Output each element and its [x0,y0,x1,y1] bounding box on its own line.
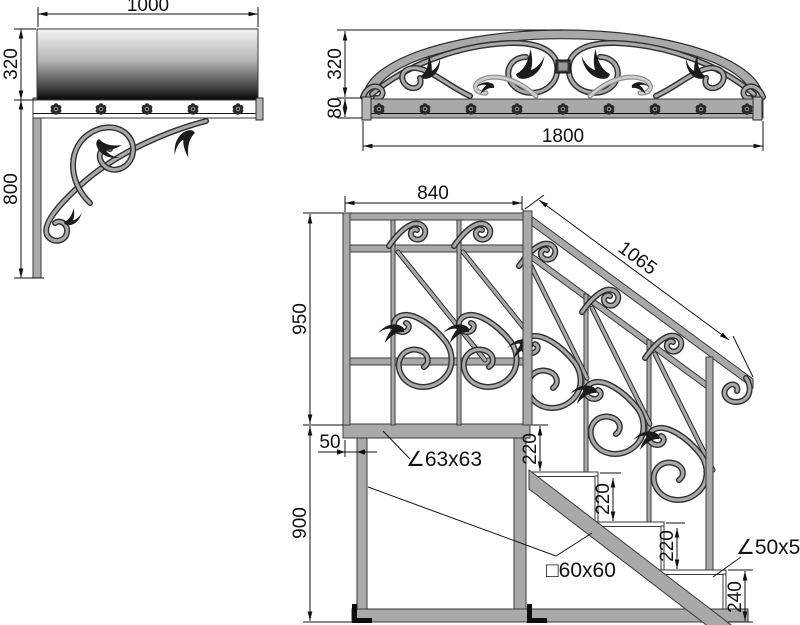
staircase-view: 840 1065 950 900 50 220 220 220 240 ∠63x… [290,183,800,625]
wrought-iron-technical-drawing: 1000 320 800 [0,0,800,625]
canopy-side-view: 1000 320 800 [1,0,263,278]
handrail-upper [523,210,753,388]
left-leg [357,438,367,610]
dim-step-rise-2: 220 [593,483,614,515]
step-tread-2 [598,522,664,527]
label-frame-profile: □60x60 [546,559,616,582]
dim-canopy-height: 320 [1,48,22,80]
dim-bottom-step-height: 240 [725,581,746,613]
step-tread-1 [530,472,598,477]
bracket-scroll-ornament [46,121,206,241]
railing-end-post [706,357,713,570]
dim-handrail-length: 1065 [614,238,661,280]
platform-beam [343,424,530,438]
dim-canopy-front-width: 1800 [542,126,584,147]
dim-railing-height: 950 [290,303,311,335]
band-end-cap [753,97,762,120]
panel-right-post [523,211,532,425]
panel-mid-rail [350,245,523,252]
step-tread-3 [656,570,726,575]
dim-canopy-width: 1000 [127,0,169,16]
canopy-front-view: 320 80 1800 [325,30,763,151]
canopy-roof-profile [37,29,258,100]
dim-bracket-height: 800 [1,173,22,205]
drawing-canvas: 1000 320 800 [0,0,800,625]
dim-step-rise-3: 220 [657,530,678,562]
dim-arch-height: 320 [325,48,346,80]
dim-band-height: 80 [325,97,346,118]
band-end-cap [362,97,371,120]
dim-base-height: 900 [290,507,311,539]
dim-step-rise-1: 220 [520,433,541,465]
band-end-cap [256,98,263,120]
dim-panel-width: 840 [417,183,449,204]
panel-top-rail [343,213,532,220]
panel-left-post [343,213,350,425]
panel-low-rail [350,358,523,365]
label-platform-profile: ∠63x63 [406,448,482,471]
wall-post [33,98,41,278]
dim-leg-offset: 50 [319,432,340,453]
label-step-profile: ∠50x50 [736,536,800,559]
